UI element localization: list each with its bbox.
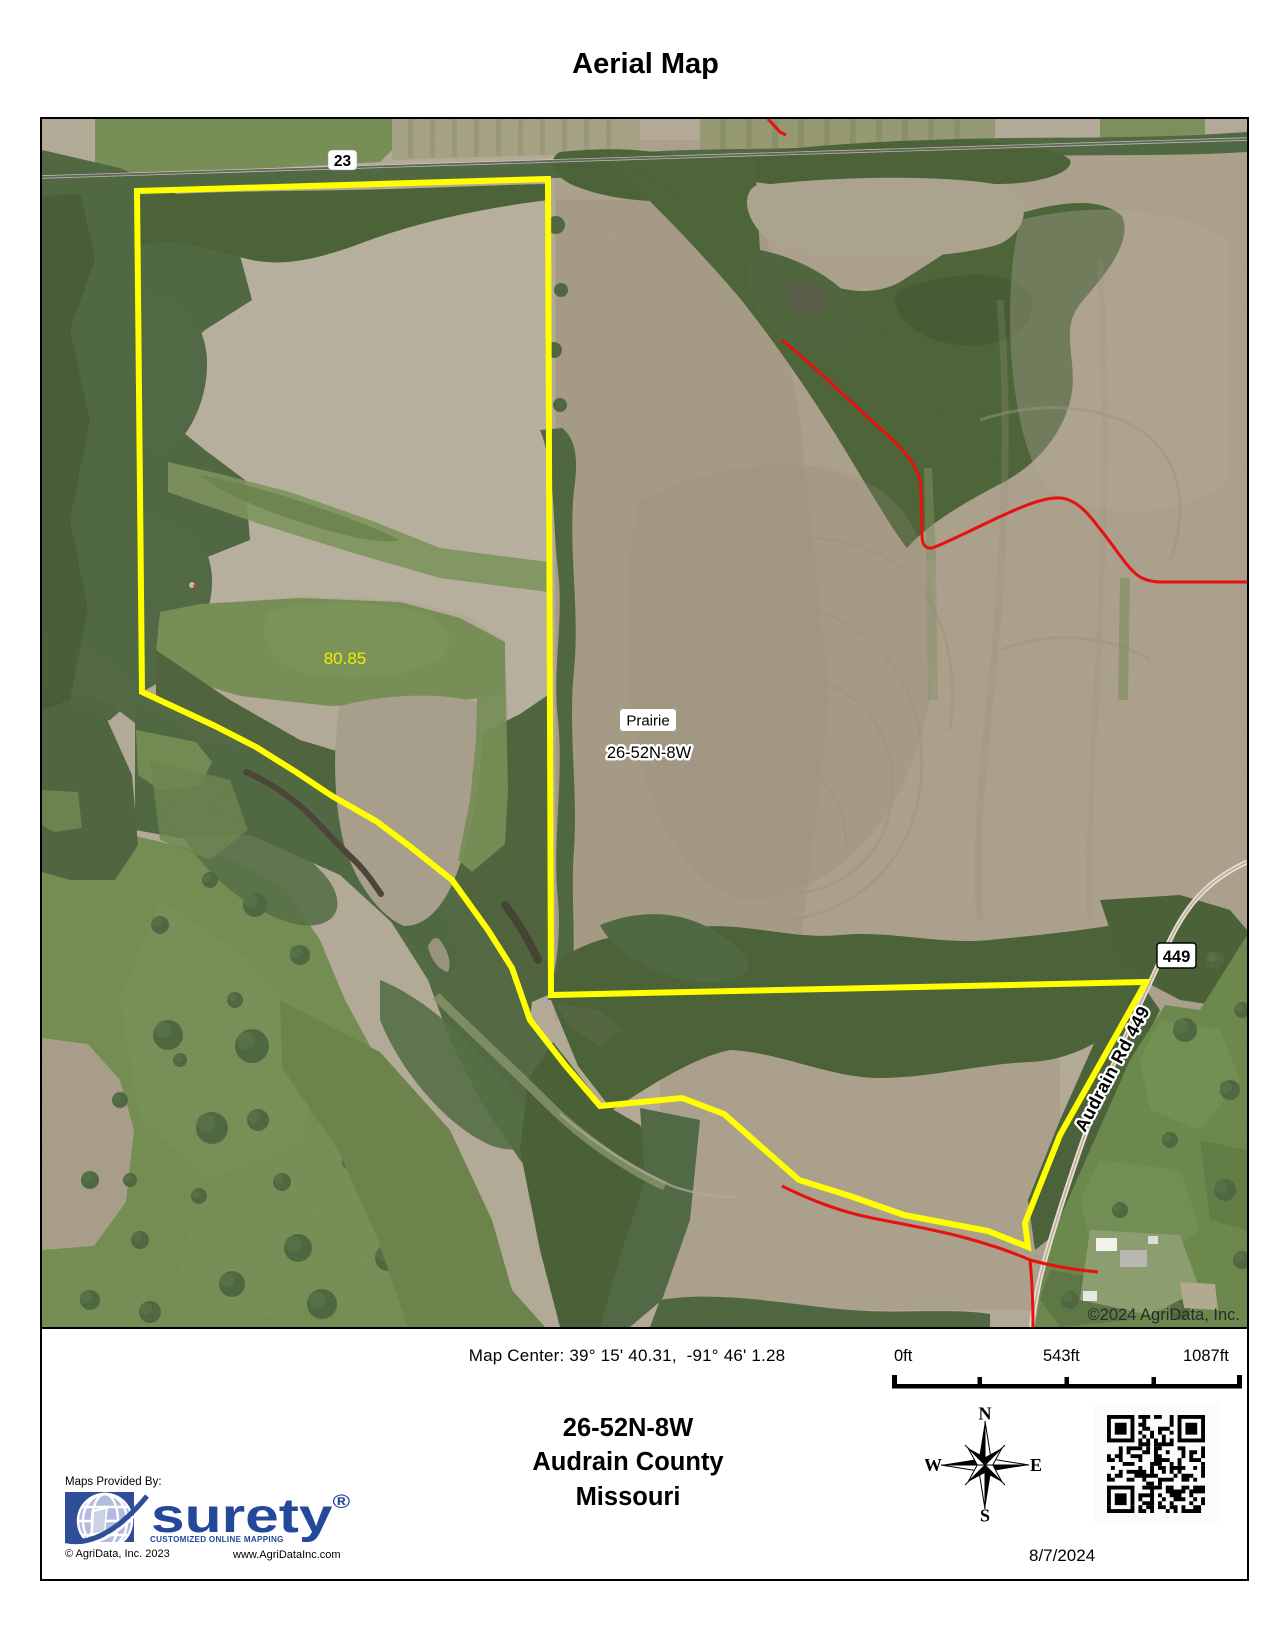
svg-text:23: 23 — [334, 153, 352, 170]
svg-text:449: 449 — [1163, 948, 1191, 966]
svg-text:E: E — [1030, 1455, 1042, 1475]
svg-text:S: S — [980, 1506, 990, 1526]
svg-text:N: N — [979, 1405, 992, 1424]
svg-text:80.85: 80.85 — [324, 649, 367, 668]
svg-text:26-52N-8W: 26-52N-8W — [607, 744, 692, 762]
svg-text:Prairie: Prairie — [626, 713, 669, 730]
svg-text:W: W — [925, 1455, 942, 1475]
svg-text:©2024 AgriData, Inc.: ©2024 AgriData, Inc. — [1088, 1306, 1241, 1324]
